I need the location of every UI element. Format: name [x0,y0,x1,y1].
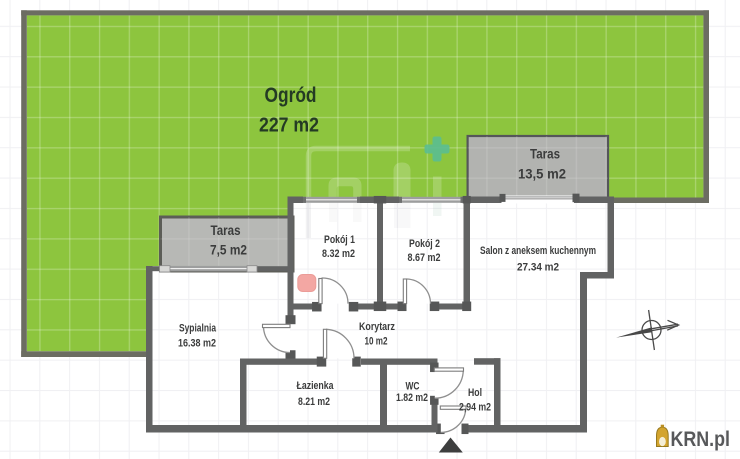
svg-text:8.67 m2: 8.67 m2 [408,252,441,264]
svg-text:Taras: Taras [211,223,241,238]
svg-text:Salon z aneksem kuchennym: Salon z aneksem kuchennym [480,245,596,257]
svg-text:KRN.pl: KRN.pl [671,427,731,451]
svg-text:7,5 m2: 7,5 m2 [210,243,247,258]
svg-text:Taras: Taras [530,147,560,162]
svg-text:227 m2: 227 m2 [259,115,319,137]
svg-text:8.21 m2: 8.21 m2 [298,396,330,408]
svg-text:8.32 m2: 8.32 m2 [322,248,355,260]
svg-text:13,5 m2: 13,5 m2 [518,167,566,182]
svg-text:16.38 m2: 16.38 m2 [178,338,216,350]
svg-text:Sypialnia: Sypialnia [179,323,217,335]
svg-text:Korytarz: Korytarz [359,321,395,333]
svg-text:Pokój 2: Pokój 2 [409,238,440,250]
svg-text:Hol: Hol [468,387,482,399]
svg-text:WC: WC [406,381,420,393]
svg-text:Pokój 1: Pokój 1 [324,234,355,246]
svg-text:27.34 m2: 27.34 m2 [517,262,559,274]
svg-text:1.82 m2: 1.82 m2 [396,392,428,404]
svg-text:Łazienka: Łazienka [297,380,335,392]
svg-text:Ogród: Ogród [265,84,317,107]
svg-text:10 m2: 10 m2 [365,336,388,348]
svg-text:2,94 m2: 2,94 m2 [459,402,491,414]
